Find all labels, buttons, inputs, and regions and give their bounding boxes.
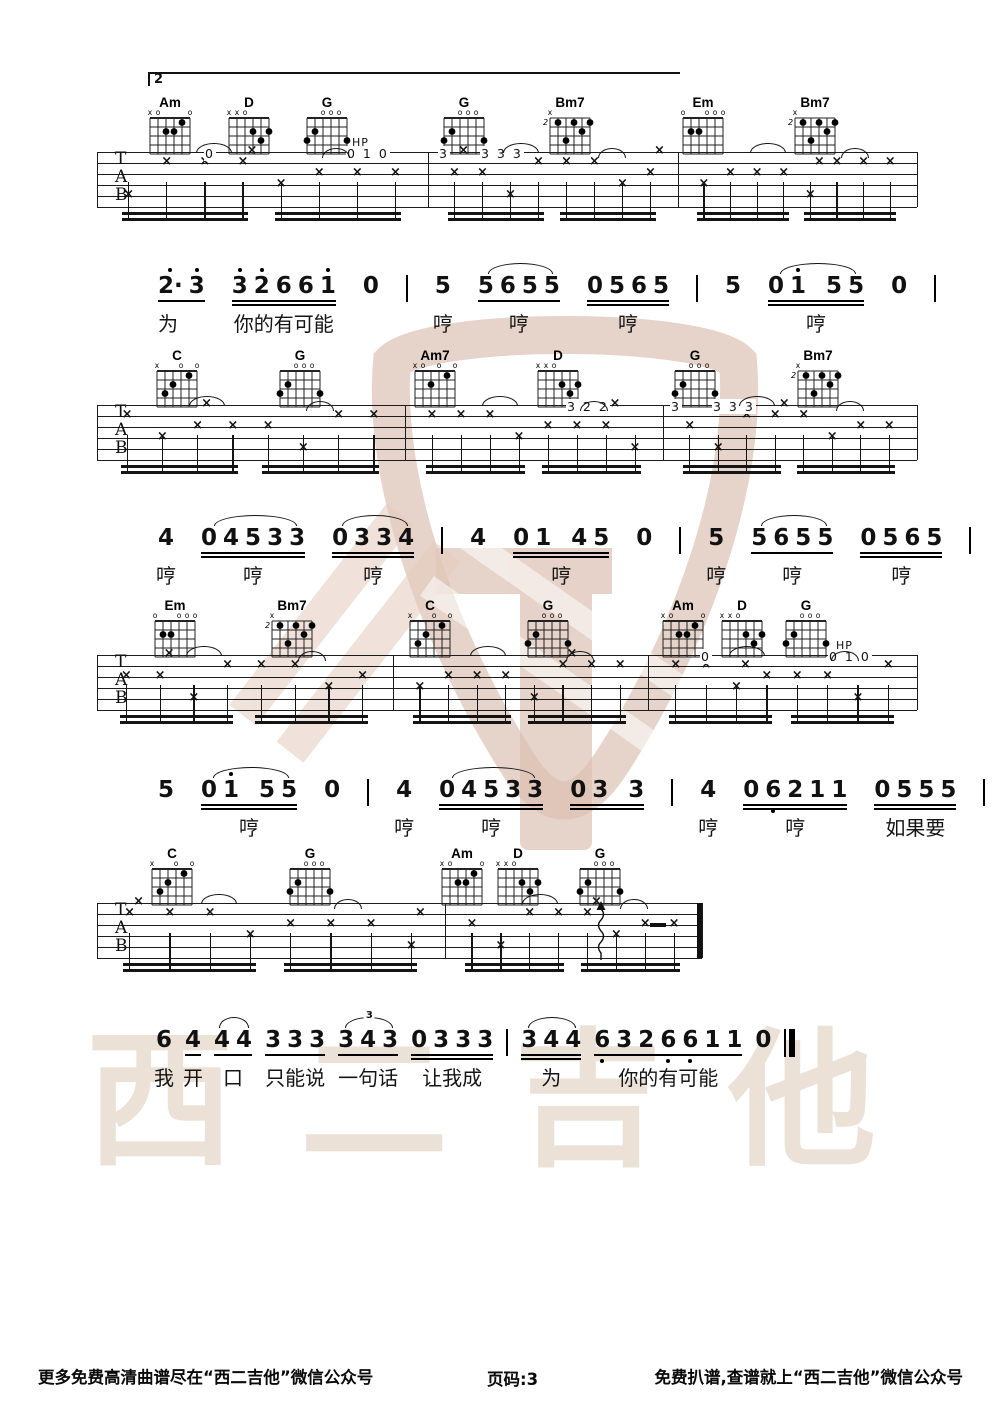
note: 1 [831, 778, 847, 802]
note: 5 [795, 526, 811, 550]
sheet-page: 西二吉他 2 更多免费高清曲谱尽在“西二吉他”微信公众号 页码:3 免费扒谱,查… [0, 0, 1000, 1414]
notes: 44 [214, 1028, 252, 1052]
measure-bar [367, 779, 369, 806]
svg-text:Am: Am [159, 96, 181, 110]
note-group: 2·3为 [158, 262, 205, 304]
note-group: 033 [570, 766, 644, 812]
lyric: 哼 [806, 308, 826, 337]
strum-x: × [325, 916, 336, 931]
staff-line [97, 699, 917, 700]
svg-text:o: o [552, 361, 557, 370]
strum-x: × [443, 668, 454, 683]
barline [97, 152, 98, 207]
barline [97, 903, 98, 958]
note-group: 5 [158, 766, 174, 802]
beam-underline [478, 300, 560, 302]
notes: 0555 [874, 778, 956, 802]
volta-number: 2 [154, 72, 163, 87]
note-group: 5哼 [435, 262, 451, 298]
note: 6 [682, 1028, 698, 1052]
beam [804, 218, 896, 221]
footer: 更多免费高清曲谱尽在“西二吉他”微信公众号 页码:3 免费扒谱,查谱就上“西二吉… [0, 1358, 1000, 1388]
svg-text:o: o [705, 361, 710, 370]
svg-text:o: o [320, 859, 325, 868]
note: 0 [324, 778, 340, 802]
beam [797, 465, 895, 468]
note-group: 6326611你的有可能 [594, 1016, 742, 1058]
staff-line [97, 460, 917, 461]
svg-text:o: o [466, 108, 471, 117]
note-group: 5655哼 [751, 514, 833, 556]
note: 0 [201, 526, 217, 550]
svg-text:o: o [705, 108, 710, 117]
measure-bar [406, 275, 408, 302]
strum-x: × [822, 668, 833, 683]
chord-diagram-g: Gooo [282, 847, 338, 913]
beam [528, 715, 626, 718]
lyric: 口 [223, 1062, 243, 1091]
beam [262, 471, 380, 474]
beam [123, 963, 256, 966]
svg-text:o: o [179, 361, 184, 370]
beam [804, 212, 896, 215]
note: 3 [287, 1028, 303, 1052]
beam-underline [513, 552, 609, 558]
note-group: 0333让我成 [411, 1016, 493, 1062]
note: 5 [817, 526, 833, 550]
note: 5 [848, 274, 864, 298]
strum-x: × [263, 418, 274, 433]
notes: 0 [636, 526, 652, 550]
svg-text:o: o [713, 108, 718, 117]
footer-right-text: 免费扒谱,查谱就上“西二吉他”微信公众号 [655, 1364, 963, 1388]
note: 5 [725, 274, 741, 298]
note: 6 [276, 274, 292, 298]
svg-text:o: o [594, 859, 599, 868]
lyric: 我 [154, 1062, 174, 1091]
lyric: 哼 [156, 560, 176, 589]
note: 5 [609, 274, 625, 298]
svg-text:o: o [329, 108, 334, 117]
note: 1 [704, 1028, 720, 1052]
note-group: 0 [363, 262, 379, 298]
svg-text:Em: Em [692, 96, 713, 110]
notes: 4 [700, 778, 716, 802]
notes: 06211 [743, 778, 847, 802]
staff-line [97, 925, 702, 926]
chord-diagram-am: Amxoo [142, 96, 198, 162]
jianpu-line: 4哼04533哼0334哼40145哼05哼5655哼0565哼 [158, 514, 971, 560]
strum-x: × [610, 396, 621, 411]
note-group: 0155哼 [768, 262, 864, 308]
lyric: 哼 [243, 560, 263, 589]
notes: 5 [435, 274, 451, 298]
note: 0 [513, 526, 529, 550]
note: 6 [660, 1028, 676, 1052]
svg-text:o: o [310, 361, 315, 370]
svg-text:Em: Em [164, 599, 185, 613]
svg-text:o: o [458, 108, 463, 117]
svg-text:o: o [437, 361, 442, 370]
svg-text:o: o [177, 611, 182, 620]
staff-line [97, 207, 917, 208]
note: 5 [940, 778, 956, 802]
note: 3 [189, 274, 205, 298]
beam [697, 218, 789, 221]
svg-text:o: o [808, 611, 813, 620]
beam-underline [874, 804, 956, 810]
note: 4 [700, 778, 716, 802]
notes: 333 [265, 1028, 325, 1052]
beam [121, 471, 239, 474]
svg-text:o: o [185, 611, 190, 620]
note-group: 04533哼 [439, 766, 543, 812]
beam [791, 715, 894, 718]
note: 0 [201, 778, 217, 802]
fret-number: 3 [438, 146, 450, 161]
svg-text:o: o [689, 361, 694, 370]
lyric: 哼 [891, 560, 911, 589]
svg-text:x: x [227, 108, 232, 117]
strum-x: × [725, 165, 736, 180]
staff-line [97, 449, 917, 450]
svg-text:x: x [548, 108, 553, 117]
tab-clef-letter: A [115, 420, 127, 440]
note-group: 0 [755, 1016, 771, 1052]
svg-text:Bm7: Bm7 [803, 349, 832, 363]
strum-x: × [485, 407, 496, 422]
svg-text:x: x [504, 859, 509, 868]
fret-number: 0 [700, 649, 712, 664]
svg-text:o: o [474, 108, 479, 117]
beam-underline [265, 1054, 325, 1056]
barline [393, 655, 394, 710]
notes: 343 [338, 1028, 398, 1052]
svg-text:o: o [697, 361, 702, 370]
strum-x: × [466, 916, 477, 931]
svg-text:Am: Am [672, 599, 694, 613]
svg-text:x: x [235, 108, 240, 117]
lyric: 哼 [394, 812, 414, 841]
note: 4 [398, 526, 414, 550]
svg-text:o: o [480, 859, 485, 868]
beam [683, 471, 781, 474]
svg-text:o: o [721, 108, 726, 117]
lyric: 哼 [698, 812, 718, 841]
svg-text:x: x [793, 108, 798, 117]
chord-diagram-am: Amxoo [434, 847, 490, 913]
svg-text:o: o [736, 611, 741, 620]
svg-text:x: x [496, 859, 501, 868]
svg-text:x: x [408, 611, 413, 620]
beam [448, 212, 544, 215]
note-spacer [812, 274, 820, 298]
note: 5 [751, 526, 767, 550]
beam-underline [751, 552, 833, 554]
beam [697, 212, 789, 215]
tab-clef-letter: B [115, 185, 128, 205]
strum-x: × [192, 418, 203, 433]
svg-text:o: o [432, 611, 437, 620]
note: 3 [382, 1028, 398, 1052]
barline [702, 903, 703, 958]
beam [413, 721, 511, 724]
strum-x: × [669, 916, 680, 931]
svg-text:x: x [440, 859, 445, 868]
beam-underline [338, 1054, 398, 1056]
staff-line [97, 947, 702, 948]
svg-text:x: x [413, 361, 418, 370]
notes: 0334 [332, 526, 414, 550]
beam [426, 471, 525, 474]
note: 5 [435, 274, 451, 298]
strum-x: × [684, 418, 695, 433]
note-group: 0 [891, 262, 907, 298]
final-bar [784, 1029, 795, 1057]
beam [121, 465, 239, 468]
note: 2 [787, 778, 803, 802]
tab-clef-letter: B [115, 936, 128, 956]
svg-text:o: o [321, 108, 326, 117]
notes: 04533 [201, 526, 305, 550]
measure-bar [934, 275, 936, 302]
note-group: 0565哼 [587, 262, 669, 308]
notes: 6 [156, 1028, 172, 1052]
note: 0 [860, 526, 876, 550]
note-group: 5655哼 [478, 262, 560, 304]
staff-line [97, 185, 917, 186]
notes: 5655 [751, 526, 833, 550]
footer-page-number: 页码:3 [487, 1366, 538, 1390]
beam [122, 218, 248, 221]
note: 3 [267, 526, 283, 550]
lyric: 为 [158, 308, 178, 337]
note: 5 [281, 778, 297, 802]
strum-x: × [883, 657, 894, 672]
note-spacer [245, 778, 253, 802]
note: 5 [918, 778, 934, 802]
strum-x: × [654, 143, 665, 158]
svg-text:x: x [150, 859, 155, 868]
notes: 6326611 [594, 1028, 742, 1052]
tab-clef-letter: T [115, 652, 126, 672]
beam-underline [158, 300, 205, 302]
hammer-pulloff-label: HP [352, 136, 369, 149]
notes: 0155 [768, 274, 864, 298]
note: 2 [638, 1028, 654, 1052]
note: 3 [376, 526, 392, 550]
strum-x: × [640, 916, 651, 931]
note: 0 [411, 1028, 427, 1052]
beam [465, 963, 564, 966]
strum-x: × [352, 165, 363, 180]
notes: 2·3 [158, 274, 205, 298]
svg-text:2: 2 [788, 118, 793, 127]
chord-diagram-bm7: Bm72x [787, 96, 843, 162]
note: 5 [483, 778, 499, 802]
tab-clef-letter: T [115, 402, 126, 422]
note: 3 [338, 1028, 354, 1052]
note: 3 [477, 1028, 493, 1052]
barline [917, 655, 918, 710]
lyric: 一句话 [338, 1062, 398, 1091]
beam [542, 471, 641, 474]
note-group: 333只能说 [265, 1016, 325, 1058]
note: 0 [768, 274, 784, 298]
svg-text:2: 2 [543, 118, 548, 127]
beam [560, 212, 656, 215]
strum-x: × [333, 407, 344, 422]
beam-underline [743, 804, 847, 810]
tab-clef-letter: T [115, 900, 126, 920]
lyric: 如果要 [885, 812, 945, 841]
notes: 0565 [587, 274, 669, 298]
barline [917, 152, 918, 207]
beam [669, 721, 772, 724]
strum-x: × [227, 418, 238, 433]
staff-line [97, 666, 917, 667]
beam-underline [411, 1054, 493, 1060]
strum-x: × [884, 418, 895, 433]
tab-clef-letter: A [115, 918, 127, 938]
beam-underline [587, 300, 669, 306]
strum-x: × [572, 418, 583, 433]
note: 4 [543, 1028, 559, 1052]
svg-text:x: x [270, 611, 275, 620]
lyric: 让我成 [422, 1062, 482, 1091]
note: 0 [439, 778, 455, 802]
svg-text:x: x [536, 361, 541, 370]
note: 1 [809, 778, 825, 802]
svg-text:o: o [453, 361, 458, 370]
note-group: 5 [725, 262, 741, 298]
final-barline-thick [697, 903, 702, 958]
svg-text:o: o [304, 859, 309, 868]
barline [917, 405, 918, 460]
note: 5 [926, 526, 942, 550]
notes: 0 [755, 1028, 771, 1052]
note: 4 [470, 526, 486, 550]
svg-text:o: o [816, 611, 821, 620]
svg-text:o: o [448, 611, 453, 620]
note: 6 [298, 274, 314, 298]
lyric: 哼 [551, 560, 571, 589]
beam [465, 969, 564, 972]
svg-text:o: o [153, 611, 158, 620]
strum-x: × [449, 165, 460, 180]
note: 5 [259, 778, 275, 802]
barline [663, 405, 664, 460]
tab-clef-letter: B [115, 438, 128, 458]
beam-underline [570, 804, 644, 810]
svg-text:2: 2 [791, 371, 796, 380]
lyric: 哼 [618, 308, 638, 337]
strum-x: × [366, 916, 377, 931]
strum-x: × [778, 165, 789, 180]
strum-x: × [601, 418, 612, 433]
svg-text:Bm7: Bm7 [800, 96, 829, 110]
svg-text:Am: Am [451, 847, 473, 861]
notes: 033 [570, 778, 644, 802]
svg-text:o: o [800, 611, 805, 620]
staff-line [97, 710, 917, 711]
note: 3 [289, 526, 305, 550]
note: 6 [631, 274, 647, 298]
volta-bracket: 2 [148, 72, 680, 86]
note-group: 4开 [185, 1016, 201, 1058]
note: 0 [363, 274, 379, 298]
footer-left-text: 更多免费高清曲谱尽在“西二吉他”微信公众号 [38, 1364, 373, 1388]
svg-text:x: x [148, 108, 153, 117]
note-group: 4 [470, 514, 486, 550]
lyric: 哼 [782, 560, 802, 589]
svg-text:o: o [312, 859, 317, 868]
note-group: 0155哼 [201, 766, 297, 812]
note: 3 [521, 1028, 537, 1052]
beam-underline [214, 1054, 252, 1056]
note: 1 [790, 274, 806, 298]
note-group: 5哼 [708, 514, 724, 550]
strum-x: × [205, 905, 216, 920]
beam [528, 721, 626, 724]
note: 5 [653, 274, 669, 298]
note: 3 [505, 778, 521, 802]
svg-text:o: o [195, 361, 200, 370]
staff-line [97, 438, 917, 439]
beam-underline [439, 804, 543, 810]
note: 1 [320, 274, 336, 298]
note: 0 [891, 274, 907, 298]
beam [255, 721, 368, 724]
svg-text:o: o [448, 859, 453, 868]
strum-arrow-icon [595, 900, 607, 962]
svg-text:Bm7: Bm7 [555, 96, 584, 110]
jianpu-line: 50155哼04哼04533哼0334哼06211哼0555如果要 [158, 766, 985, 812]
lyric: 哼 [509, 308, 529, 337]
staff-line [97, 914, 702, 915]
notes: 0 [891, 274, 907, 298]
staff-line [97, 174, 917, 175]
note-group: 0555如果要 [874, 766, 956, 812]
lyric: 你的有可能 [234, 308, 334, 337]
note: 3 [455, 1028, 471, 1052]
note: 6 [904, 526, 920, 550]
lyric: 开 [183, 1062, 203, 1091]
note-group: 06211哼 [743, 766, 847, 812]
beam-underline [185, 1054, 201, 1056]
measure-bar [696, 275, 698, 302]
notes: 0 [324, 778, 340, 802]
beam [542, 465, 641, 468]
note: 1 [535, 526, 551, 550]
strum-x: × [885, 154, 896, 169]
beam-underline [201, 804, 297, 810]
note: 5 [896, 778, 912, 802]
notes: 04533 [439, 778, 543, 802]
note: 3 [628, 778, 644, 802]
note: 1 [223, 778, 239, 802]
svg-text:o: o [190, 859, 195, 868]
note: 4 [185, 1028, 201, 1052]
strum-x: × [761, 668, 772, 683]
beam [122, 212, 248, 215]
note: 0 [636, 526, 652, 550]
beam [791, 721, 894, 724]
note: 4 [396, 778, 412, 802]
measure-bar [969, 527, 971, 554]
svg-text:o: o [188, 108, 193, 117]
note-group: 0145哼 [513, 514, 609, 560]
